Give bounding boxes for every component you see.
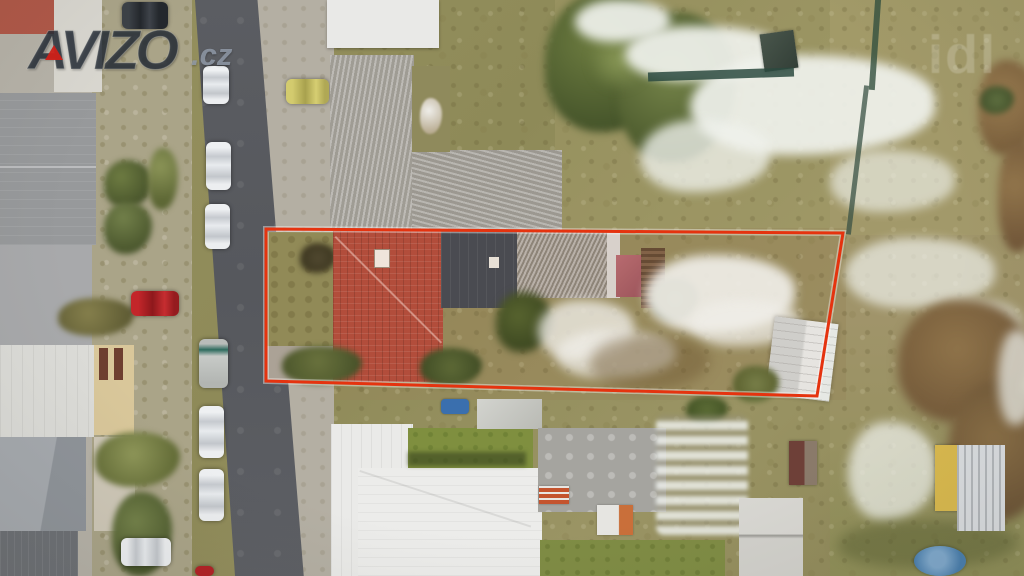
aerial-photo: AVIZO .cz idl bbox=[0, 0, 1024, 576]
property-outline-line bbox=[266, 229, 843, 396]
corner-watermark: idl bbox=[928, 28, 997, 82]
avizo-triangle-icon bbox=[45, 45, 63, 60]
avizo-tld-text: .cz bbox=[191, 39, 232, 70]
property-outline bbox=[0, 0, 1024, 576]
avizo-logo: AVIZO .cz bbox=[28, 22, 258, 74]
